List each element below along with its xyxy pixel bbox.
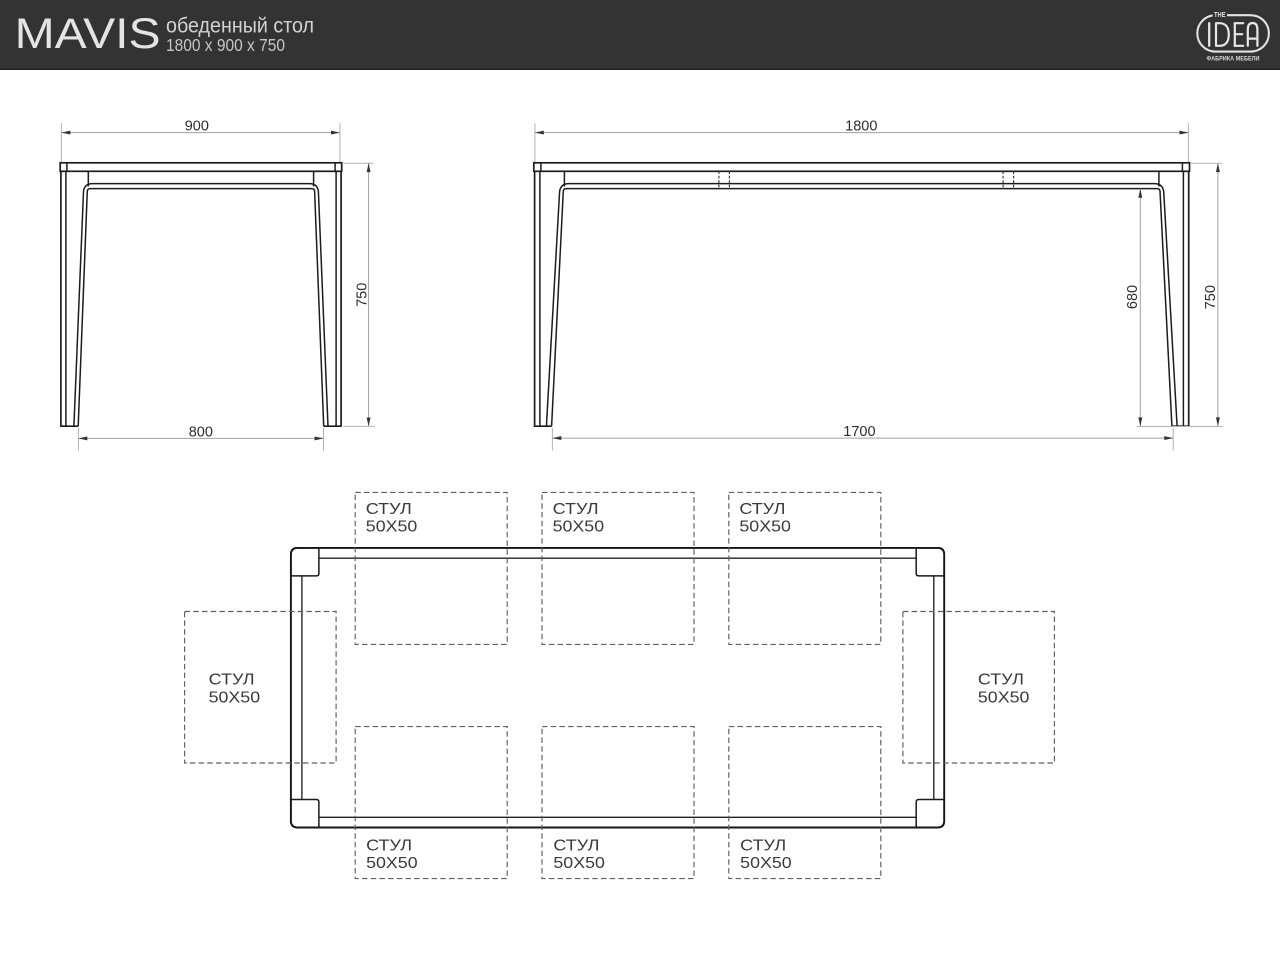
svg-text:50X50: 50X50 bbox=[739, 519, 791, 536]
svg-text:СТУЛ: СТУЛ bbox=[739, 501, 785, 518]
svg-text:50X50: 50X50 bbox=[366, 855, 418, 872]
svg-text:50X50: 50X50 bbox=[553, 855, 605, 872]
svg-text:800: 800 bbox=[189, 424, 213, 440]
svg-text:СТУЛ: СТУЛ bbox=[366, 501, 412, 518]
svg-text:50X50: 50X50 bbox=[553, 519, 605, 536]
svg-text:СТУЛ: СТУЛ bbox=[366, 837, 412, 854]
svg-text:1700: 1700 bbox=[843, 424, 875, 440]
svg-text:750: 750 bbox=[1203, 285, 1219, 309]
svg-text:СТУЛ: СТУЛ bbox=[553, 837, 599, 854]
svg-text:СТУЛ: СТУЛ bbox=[740, 837, 786, 854]
svg-text:50X50: 50X50 bbox=[366, 519, 418, 536]
svg-text:СТУЛ: СТУЛ bbox=[209, 672, 255, 689]
svg-text:680: 680 bbox=[1125, 285, 1141, 309]
svg-text:СТУЛ: СТУЛ bbox=[553, 501, 599, 518]
svg-text:50X50: 50X50 bbox=[740, 855, 792, 872]
svg-text:1800: 1800 bbox=[845, 119, 877, 135]
svg-text:50X50: 50X50 bbox=[978, 690, 1030, 707]
svg-text:MAVIS: MAVIS bbox=[15, 10, 161, 57]
svg-text:СТУЛ: СТУЛ bbox=[978, 672, 1024, 689]
svg-text:ФАБРИКА МЕБЕЛИ: ФАБРИКА МЕБЕЛИ bbox=[1207, 55, 1260, 62]
svg-text:50X50: 50X50 bbox=[209, 690, 261, 707]
svg-text:THE: THE bbox=[1214, 12, 1226, 19]
svg-text:750: 750 bbox=[354, 283, 370, 307]
svg-text:900: 900 bbox=[185, 119, 209, 135]
svg-text:1800 x 900 x 750: 1800 x 900 x 750 bbox=[166, 35, 285, 55]
